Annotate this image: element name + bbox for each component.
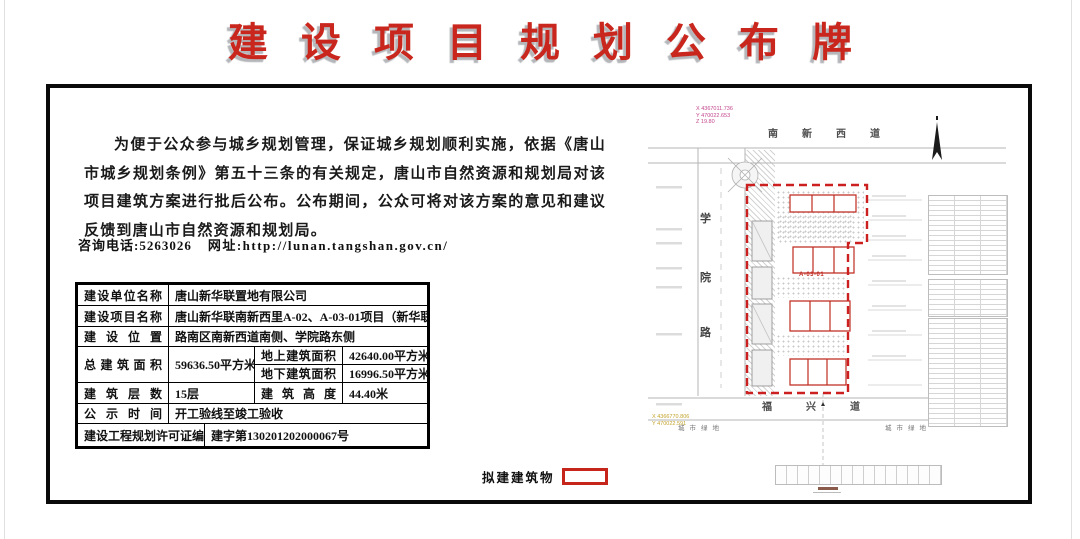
- floors-value: 15层: [169, 383, 255, 404]
- existing-buildings: [752, 221, 772, 386]
- total-area-label: 总建筑面积: [77, 347, 169, 383]
- project-name-value: 唐山新华联南新西里A-02、A-03-01项目（新华联国花园A地块）: [169, 306, 429, 327]
- north-road-label: 南新西道: [768, 125, 904, 140]
- drawing-caption-underline: [813, 492, 841, 493]
- phone-text: 咨询电话:5263026: [78, 235, 192, 254]
- notice-board-page: 建设项目规划公布牌 为便于公众参与城乡规划管理，保证城乡规划顺利实施，依据《唐山…: [0, 0, 1080, 539]
- map-legend: 拟建建筑物: [482, 467, 608, 486]
- callout-leader-lines: [868, 200, 922, 385]
- height-value: 44.40米: [343, 383, 429, 404]
- height-label: 建筑高度: [255, 383, 343, 404]
- green-space-label-left: 城市绿地: [678, 422, 724, 432]
- plaza-roundabout: [728, 158, 762, 192]
- publicity-period-value: 开工验线至竣工验收: [169, 404, 429, 424]
- unit-name-value: 唐山新华联置地有限公司: [169, 284, 429, 306]
- photo-left-edge: [4, 0, 5, 539]
- above-ground-area-label: 地上建筑面积: [255, 347, 343, 365]
- notice-board: 为便于公众参与城乡规划管理，保证城乡规划顺利实施，依据《唐山市城乡规划条例》第五…: [46, 84, 1032, 504]
- drawing-caption-mark: [818, 487, 838, 490]
- green-space-label-right: 城市绿地: [885, 422, 931, 432]
- website-text: 网址:http://lunan.tangshan.gov.cn/: [208, 235, 449, 254]
- legend-label: 拟建建筑物: [482, 467, 555, 486]
- contact-line: 咨询电话:5263026 网址:http://lunan.tangshan.go…: [78, 235, 448, 254]
- existing-building-strip: [775, 465, 942, 485]
- location-value: 路南区南新西道南侧、学院路东侧: [169, 327, 429, 347]
- west-road-char-3: 路: [700, 324, 711, 340]
- below-ground-area-value: 16996.50平方米: [343, 365, 429, 383]
- site-parcel-label: A-03-01: [799, 272, 824, 278]
- page-title: 建设项目规划公布牌: [0, 10, 1080, 68]
- unit-name-label: 建设单位名称: [77, 284, 169, 306]
- west-road-char-2: 院: [700, 269, 711, 285]
- proposed-building-swatch: [562, 468, 608, 485]
- utility-annotation-marks: [656, 186, 682, 406]
- north-arrow-icon: [932, 116, 942, 160]
- indicator-table-3: [928, 318, 1008, 427]
- permit-number-label: 建设工程规划许可证编号: [77, 424, 205, 448]
- publicity-period-label: 公示时间: [77, 404, 169, 424]
- indicator-table-2: [928, 279, 1008, 317]
- coordinate-annotation-top: X 4367011.736Y 470022.653Z 19.80: [696, 106, 733, 126]
- project-info-table: 建设单位名称 唐山新华联置地有限公司 建设项目名称 唐山新华联南新西里A-02、…: [75, 282, 430, 449]
- west-road-char-1: 学: [700, 210, 711, 226]
- indicator-table-1: [928, 195, 1008, 275]
- below-ground-area-label: 地下建筑面积: [255, 365, 343, 383]
- total-area-value: 59636.50平方米: [169, 347, 255, 383]
- notice-paragraph: 为便于公众参与城乡规划管理，保证城乡规划顺利实施，依据《唐山市城乡规划条例》第五…: [84, 131, 606, 245]
- permit-number-value: 建字第130201202000067号: [205, 424, 429, 448]
- floors-label: 建筑层数: [77, 383, 169, 404]
- site-plan-map: X 4367011.736Y 470022.653Z 19.80 南新西道 学 …: [648, 88, 1008, 500]
- photo-right-edge: [1071, 0, 1072, 539]
- above-ground-area-value: 42640.00平方米: [343, 347, 429, 365]
- proposed-buildings: [790, 195, 856, 385]
- south-road-label: 福兴道: [762, 398, 894, 413]
- location-label: 建设位置: [77, 327, 169, 347]
- project-name-label: 建设项目名称: [77, 306, 169, 327]
- callout-text-marks: [872, 195, 906, 357]
